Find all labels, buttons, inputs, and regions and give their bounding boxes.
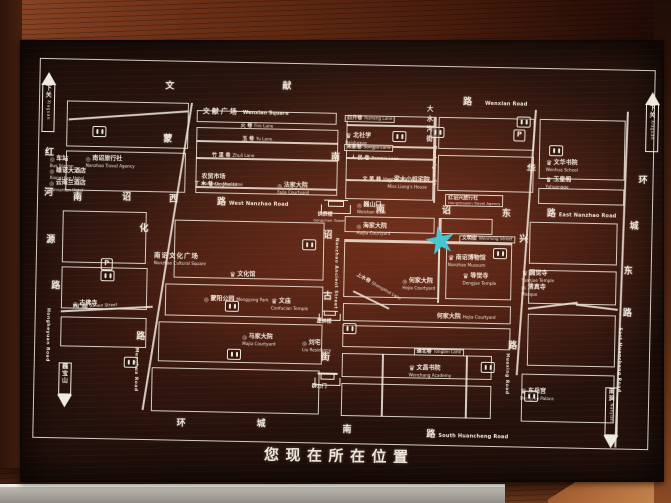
wenbi-lane: 文 笔 巷Wenbi Lane [362, 177, 407, 183]
road-name-char: 诏 [442, 207, 451, 217]
floor-strip [0, 484, 505, 503]
restroom-icon [524, 391, 538, 402]
city-block [341, 383, 492, 419]
gongchen-tower: 拱辰楼Gongchen Tower [321, 204, 351, 214]
city-block [529, 222, 618, 266]
fajia-courtyard: ◎法家大院Fajia Courtyard [277, 174, 309, 196]
restroom-icon [227, 349, 241, 360]
confucian-temple: ♛文庙Confucian Temple [271, 290, 309, 312]
hejia-courtyard-1: ◎何家大院Hejia Courtyard [402, 269, 435, 291]
city-block [342, 325, 510, 350]
east-nanzhao-road: East Nanzhao Road [559, 213, 617, 219]
dengjue-temple: ♛等觉寺Dengjue Temple [462, 264, 496, 286]
qunli-gate: 群力门 [314, 377, 340, 386]
dingmu-lane: 丁 木 巷Dingmu Lane [194, 182, 242, 188]
road-name-char: 西 [169, 195, 178, 205]
hongheyuan-road: Hongheyuan Road [44, 308, 50, 362]
road-name-char: 环 [176, 420, 185, 430]
haijia-courtyard: ◎海家大院Haijia Courtyard [356, 214, 390, 236]
road-name-char: 东 [502, 210, 511, 220]
restroom-icon [342, 323, 356, 334]
wenchang-academy: ♛文昌书院Wenchang Academy [409, 356, 452, 379]
renmin-lane: 人 民 巷Renmin Lane [351, 156, 399, 162]
restroom-icon [430, 127, 444, 138]
beishexue: ♛北社学Beishexue [345, 124, 371, 146]
restroom-icon [124, 357, 138, 368]
mosque: ◎清真寺Mosque [521, 276, 546, 298]
city-block [437, 155, 534, 193]
restroom-icon [392, 131, 406, 142]
wenxian-square: 文献广场Wenxian Square [203, 100, 289, 119]
road-name-char: 兴 [519, 236, 528, 246]
restroom-icon [481, 362, 495, 373]
city-block [62, 210, 147, 264]
restroom-icon [517, 116, 531, 127]
city-block [538, 188, 624, 206]
wood-frame-left [0, 0, 22, 503]
risheng-lane: 日升巷Risheng Lane [345, 115, 395, 123]
road-name-char: 路 [547, 210, 556, 220]
city-block [151, 367, 320, 414]
road-name-char: 化 [139, 225, 148, 235]
road-name-char: 南 [342, 426, 351, 436]
restroom-icon [302, 239, 316, 250]
road-name-char: 路 [51, 282, 60, 292]
hejia-courtyard-2: 何家大院Hejia Courtyard [437, 305, 496, 323]
xinggong-tower: 星拱楼 [319, 314, 341, 321]
menghua-road: Menghua Road [132, 348, 138, 392]
city-block [60, 316, 147, 348]
parking-icon: P [513, 129, 525, 141]
you-are-here-banner: 您现在所在位置 [264, 444, 415, 468]
road-name-char: 源 [46, 236, 55, 246]
road-name-char: 东 [624, 268, 633, 278]
majia-courtyard: ◎马家大院Majia Courtyard [242, 325, 276, 347]
yu-lane: 玉 巷Yu Lane [242, 137, 272, 143]
nanzhao-cultural-square: 南诏文化广场Nanzhao Cultural Square [154, 244, 207, 267]
huaxing-road: Huaxing Road [503, 353, 509, 394]
city-block [527, 314, 616, 368]
wenxian-road: Wenxian Road [485, 102, 528, 108]
road-name-char: 路 [136, 333, 145, 343]
road-name-char: 诏 [323, 232, 332, 242]
map-sign-photo: 文献路Wenxian Road南诏西路West Nanzhao Road南诏东路… [0, 0, 671, 503]
road-name-char: 环 [638, 177, 647, 187]
road-name-char: 古 [323, 293, 332, 303]
road-name-char: 城 [256, 420, 265, 430]
restroom-icon [493, 248, 507, 259]
restroom-icon [92, 126, 106, 137]
songjia-lane: 宋家巷Songjia Lane [344, 144, 393, 152]
site-circle-icon: ◎ [204, 298, 209, 304]
legend-nanzhao-travel-agency: ◎南诏旅行社Nanzhao Travel Agency [86, 147, 135, 170]
road-name-char: 城 [629, 223, 638, 233]
road-name-char: 街 [321, 354, 330, 364]
hongzhaoxin-travel-agency: 红诏兴旅行社Hongzhaoxin Travel Agency [445, 194, 504, 207]
road-name-char: 路 [463, 98, 472, 108]
fire-lane: 火 巷Fire Lane [240, 124, 273, 130]
city-block [440, 218, 492, 235]
street-name-char: 水 [427, 116, 434, 123]
nanzhao-ancient-street: Nanzhao Ancient Street [332, 238, 338, 309]
culture-hall: ♛文化馆 [229, 263, 255, 280]
road-name-char: 华 [527, 166, 536, 176]
wenming-street: 文明街Wenming Street [459, 235, 515, 243]
road-name-char: 路 [426, 431, 435, 441]
wood-frame-top [0, 0, 671, 44]
road-name-char: 路 [508, 342, 517, 352]
road-name-char: 蒙 [163, 135, 172, 145]
restroom-icon [100, 270, 114, 281]
parking-icon: P [101, 258, 113, 270]
yuhuangge: ♛玉皇阁Yuhuangge [545, 168, 571, 190]
weishan-gate: ◎巍山门Weishan Gate [357, 193, 386, 215]
tongbei-lane: 通北巷Tongbei Lane [414, 348, 464, 356]
restroom-icon [225, 301, 239, 312]
road-name-char: 诏 [122, 194, 131, 204]
road-name-char: 献 [282, 83, 291, 93]
temple-crown-icon: ♛ [229, 272, 235, 279]
map-board: 文献路Wenxian Road南诏西路West Nanzhao Road南诏东路… [20, 40, 664, 482]
liu-residence: ◎刘宅Liu Residence [302, 331, 331, 353]
street-name-char: 大 [427, 106, 434, 113]
east-huancheng-road: East Huancheng Road [615, 327, 621, 392]
legend-yunnanlan-hotel: ◎云南兰酒店Yunnanlan Hotel [49, 171, 86, 193]
restroom-icon [549, 145, 563, 156]
road-name-char: 文 [165, 82, 174, 92]
road-name-char: 南 [331, 154, 340, 164]
road-name-char: 南 [73, 194, 82, 204]
street-map: 文献路Wenxian Road南诏西路West Nanzhao Road南诏东路… [28, 52, 660, 456]
zhuli-lane: 竹 里 巷Zhuli Lane [212, 153, 255, 159]
road-name-char: 路 [217, 198, 226, 208]
dashuigou-street: Dashuigou St [430, 146, 436, 186]
road-name-char: 路 [623, 310, 632, 320]
